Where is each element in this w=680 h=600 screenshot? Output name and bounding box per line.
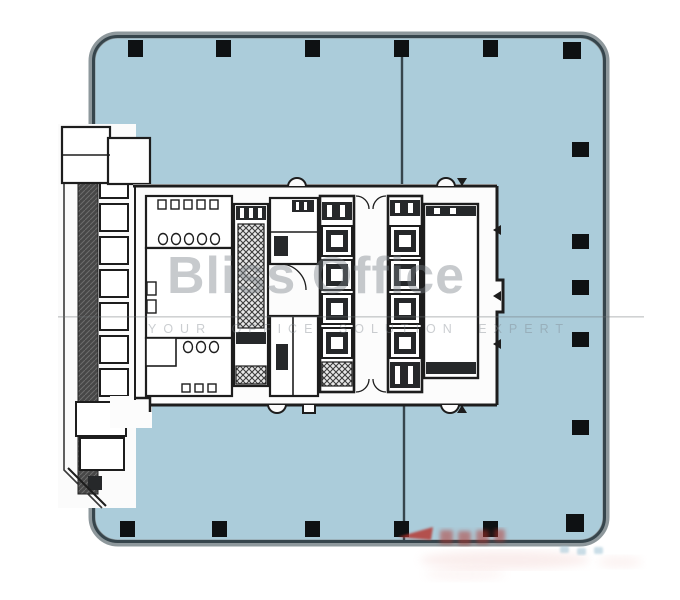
column	[120, 521, 135, 537]
strip-cell	[100, 369, 128, 396]
duct	[276, 344, 288, 370]
core-open-room	[146, 248, 232, 338]
basin	[147, 282, 156, 295]
blue-specks	[560, 546, 603, 555]
core-left-foot	[110, 396, 152, 428]
basin	[147, 300, 156, 313]
elevator-bank-b	[388, 196, 422, 392]
column	[572, 420, 589, 435]
elevator-car	[322, 260, 352, 290]
column	[216, 40, 231, 57]
elevator-car	[322, 226, 352, 256]
shaft-pit	[322, 362, 352, 386]
strip-dark-shaft	[88, 476, 102, 490]
elevator-car	[322, 328, 352, 358]
column-corner	[563, 42, 581, 59]
strip-cell	[100, 336, 128, 363]
scan-fold-line	[58, 316, 644, 318]
elevator-car	[390, 226, 420, 256]
core-toilet-block	[146, 196, 232, 396]
strip-bottom-room	[80, 438, 124, 470]
column	[305, 521, 320, 537]
elevator-car	[390, 260, 420, 290]
stair-flight	[238, 224, 264, 328]
vent-block	[390, 200, 420, 216]
strip-top-room	[108, 138, 150, 184]
vent-block	[426, 362, 476, 374]
column	[212, 521, 227, 537]
elevator-car	[322, 294, 352, 324]
stair-shaft	[234, 204, 268, 386]
elevator-car	[390, 328, 420, 358]
column	[572, 142, 589, 157]
column	[483, 40, 498, 57]
strip-cell	[100, 237, 128, 264]
strip-cell	[100, 270, 128, 297]
column	[305, 40, 320, 57]
stair-flight	[236, 366, 266, 384]
stamp-reflection	[420, 551, 642, 581]
vent-block	[322, 202, 352, 220]
vent-block	[292, 200, 314, 212]
elevator-bank-a	[320, 196, 354, 392]
floorplan-drawing	[0, 0, 680, 600]
column	[128, 40, 143, 57]
column	[394, 40, 409, 57]
vent-block	[390, 362, 420, 388]
column	[572, 332, 589, 347]
column	[572, 234, 589, 249]
duct	[274, 236, 288, 256]
toilet-sub-room	[146, 338, 176, 366]
elevator-car	[390, 294, 420, 324]
central-core	[110, 178, 503, 428]
strip-cell	[100, 204, 128, 231]
floorplan-page: Bliss Office YOUR OFFICE SOLUTION EXPERT	[0, 0, 680, 600]
column-corner	[566, 514, 584, 532]
column	[572, 280, 589, 295]
stair-landing	[236, 332, 266, 344]
